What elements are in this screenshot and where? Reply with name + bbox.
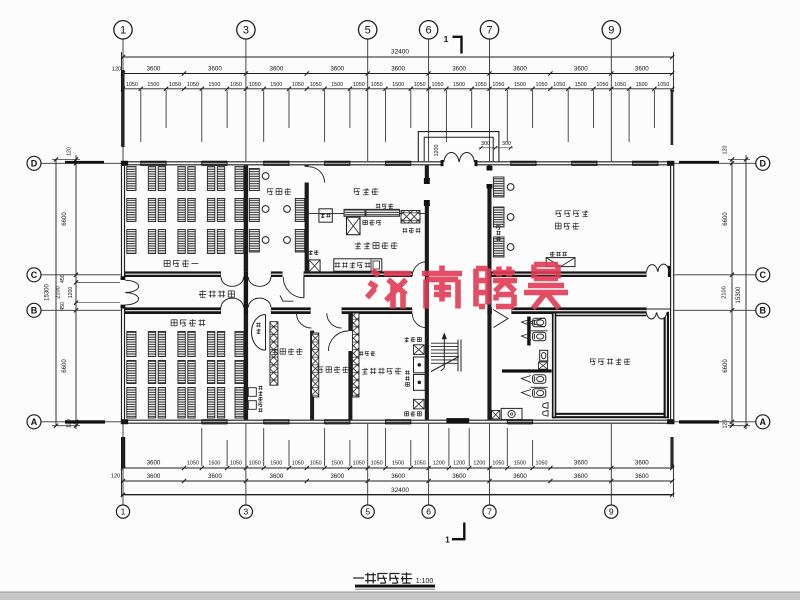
svg-text:3600: 3600 [147,65,161,72]
svg-text:1500: 1500 [636,82,648,88]
svg-text:300: 300 [502,141,511,147]
svg-text:120: 120 [112,67,121,73]
svg-text:1500: 1500 [208,461,220,467]
svg-text:1500: 1500 [514,461,526,467]
svg-text:1050: 1050 [292,82,304,88]
svg-text:2100: 2100 [722,286,728,298]
svg-text:1: 1 [121,507,126,517]
svg-text:6: 6 [426,25,432,37]
svg-text:1050: 1050 [432,82,444,88]
svg-text:6600: 6600 [723,359,729,373]
svg-text:3: 3 [244,507,249,517]
svg-text:6: 6 [426,507,431,517]
svg-text:3600: 3600 [513,65,527,72]
svg-text:1500: 1500 [575,82,587,88]
svg-text:3600: 3600 [635,65,649,72]
svg-text:1050: 1050 [536,82,548,88]
svg-text:15300: 15300 [736,286,742,303]
svg-text:3600: 3600 [208,473,222,480]
svg-text:1:100: 1:100 [416,578,434,585]
svg-text:1500: 1500 [331,82,343,88]
svg-text:3600: 3600 [270,65,284,72]
svg-text:1050: 1050 [657,82,669,88]
svg-text:450: 450 [60,274,66,283]
svg-text:1050: 1050 [353,82,365,88]
svg-text:3: 3 [243,25,249,37]
svg-text:B: B [760,306,767,316]
svg-text:1050: 1050 [614,82,626,88]
svg-text:3600: 3600 [330,473,344,480]
svg-text:1050: 1050 [169,82,181,88]
svg-text:3600: 3600 [147,460,161,467]
svg-text:1050: 1050 [230,82,242,88]
svg-text:3600: 3600 [391,65,405,72]
svg-text:3600: 3600 [513,473,527,480]
svg-text:B: B [31,306,38,316]
svg-text:120: 120 [67,147,73,156]
svg-text:7: 7 [486,25,492,37]
svg-text:3600: 3600 [208,65,222,72]
svg-text:C: C [31,270,38,280]
svg-text:A: A [760,417,767,427]
svg-text:3600: 3600 [574,65,588,72]
svg-text:120: 120 [723,420,729,429]
svg-text:1200: 1200 [453,461,465,467]
svg-text:1500: 1500 [147,82,159,88]
svg-text:1050: 1050 [596,82,608,88]
svg-text:1500: 1500 [270,82,282,88]
svg-text:5: 5 [365,25,371,37]
svg-text:450: 450 [60,302,66,311]
svg-text:3600: 3600 [635,460,649,467]
svg-text:1500: 1500 [208,82,220,88]
svg-text:9: 9 [608,25,614,37]
svg-text:1050: 1050 [475,82,487,88]
svg-text:1500: 1500 [514,82,526,88]
svg-text:1200: 1200 [433,461,445,467]
svg-text:1050: 1050 [310,82,322,88]
svg-text:1500: 1500 [331,461,343,467]
svg-text:1050: 1050 [492,82,504,88]
svg-text:2100: 2100 [56,286,62,298]
svg-text:1050: 1050 [187,461,199,467]
svg-text:1050: 1050 [310,461,322,467]
svg-text:1050: 1050 [553,82,565,88]
svg-text:1050: 1050 [492,461,504,467]
svg-text:1: 1 [445,536,450,545]
svg-text:1200: 1200 [434,145,440,157]
svg-text:7: 7 [487,507,492,517]
svg-text:1050: 1050 [414,461,426,467]
svg-text:1: 1 [444,34,449,44]
svg-text:1050: 1050 [249,461,261,467]
svg-text:120: 120 [111,474,120,480]
svg-text:1050: 1050 [353,461,365,467]
svg-text:32400: 32400 [391,49,409,56]
svg-text:15300: 15300 [45,283,51,300]
svg-text:3600: 3600 [147,473,161,480]
svg-text:1050: 1050 [536,461,548,467]
svg-text:1050: 1050 [371,461,383,467]
svg-text:1: 1 [120,25,126,37]
svg-text:1050: 1050 [230,461,242,467]
svg-text:120: 120 [723,146,729,155]
svg-text:9: 9 [609,507,614,517]
svg-text:3600: 3600 [452,473,466,480]
svg-text:1500: 1500 [270,461,282,467]
svg-text:1050: 1050 [292,461,304,467]
svg-text:1500: 1500 [392,82,404,88]
svg-text:1200: 1200 [68,287,74,299]
svg-text:1500: 1500 [392,461,404,467]
svg-text:5: 5 [365,507,370,517]
svg-text:1500: 1500 [453,82,465,88]
svg-text:6600: 6600 [723,212,729,226]
svg-text:A: A [31,417,38,427]
svg-text:3600: 3600 [574,473,588,480]
svg-text:32400: 32400 [391,487,409,494]
svg-text:1050: 1050 [187,82,199,88]
svg-text:3600: 3600 [635,473,649,480]
svg-text:3600: 3600 [270,473,284,480]
svg-text:3600: 3600 [330,65,344,72]
svg-text:3600: 3600 [452,65,466,72]
svg-text:6600: 6600 [62,212,68,226]
svg-text:3600: 3600 [574,460,588,467]
svg-text:1200: 1200 [473,461,485,467]
svg-text:6600: 6600 [62,359,68,373]
svg-text:1050: 1050 [371,82,383,88]
svg-text:C: C [760,270,767,280]
svg-text:1050: 1050 [126,82,138,88]
svg-text:D: D [760,159,767,169]
svg-text:1050: 1050 [249,82,261,88]
svg-text:3600: 3600 [391,473,405,480]
svg-text:D: D [31,159,38,169]
svg-text:1050: 1050 [414,82,426,88]
